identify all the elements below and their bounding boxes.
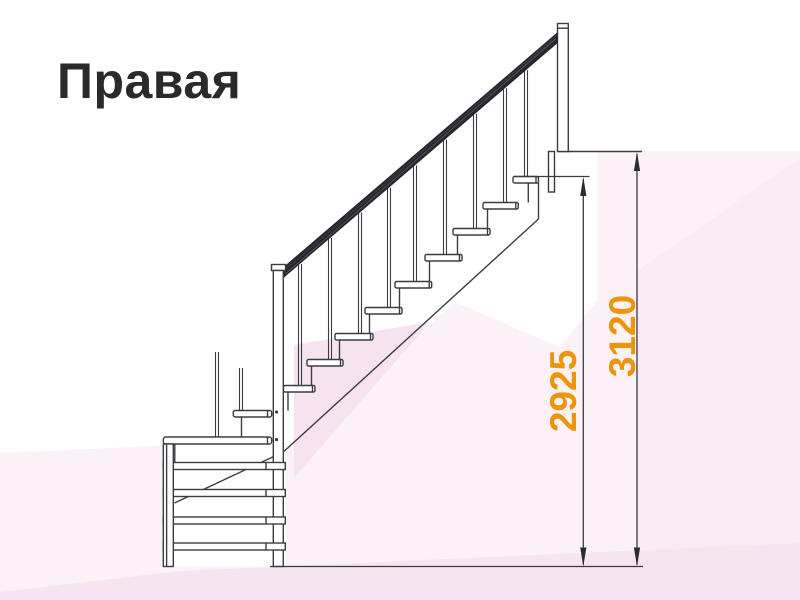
- tread: [453, 229, 490, 236]
- winder-bar: [163, 543, 285, 550]
- tread: [307, 360, 343, 367]
- tread: [395, 282, 432, 289]
- winder-steps: [163, 411, 285, 567]
- staircase-diagram-page: Правая 2925 3120: [0, 0, 800, 600]
- top-newel-post: [558, 24, 569, 152]
- winder-bar: [163, 517, 285, 524]
- handrail: [284, 32, 558, 278]
- bottom-left-post: [163, 444, 173, 567]
- fascia-board: [549, 152, 555, 193]
- tread: [365, 308, 402, 315]
- tread: [425, 255, 462, 262]
- background-facets: [0, 151, 800, 600]
- winder-bar: [163, 463, 285, 470]
- tread: [483, 203, 518, 210]
- tread: [335, 334, 373, 341]
- winder-bar: [163, 490, 285, 497]
- tread: [513, 177, 539, 184]
- page-title: Правая: [57, 52, 241, 110]
- dimension-arrow-up: [580, 177, 586, 196]
- dimension-label-3120: 3120: [603, 256, 643, 416]
- dimension-label-2925: 2925: [544, 311, 584, 471]
- winder-tread-wide: [163, 437, 271, 444]
- winder-tread-short: [233, 411, 271, 418]
- tread: [284, 386, 316, 393]
